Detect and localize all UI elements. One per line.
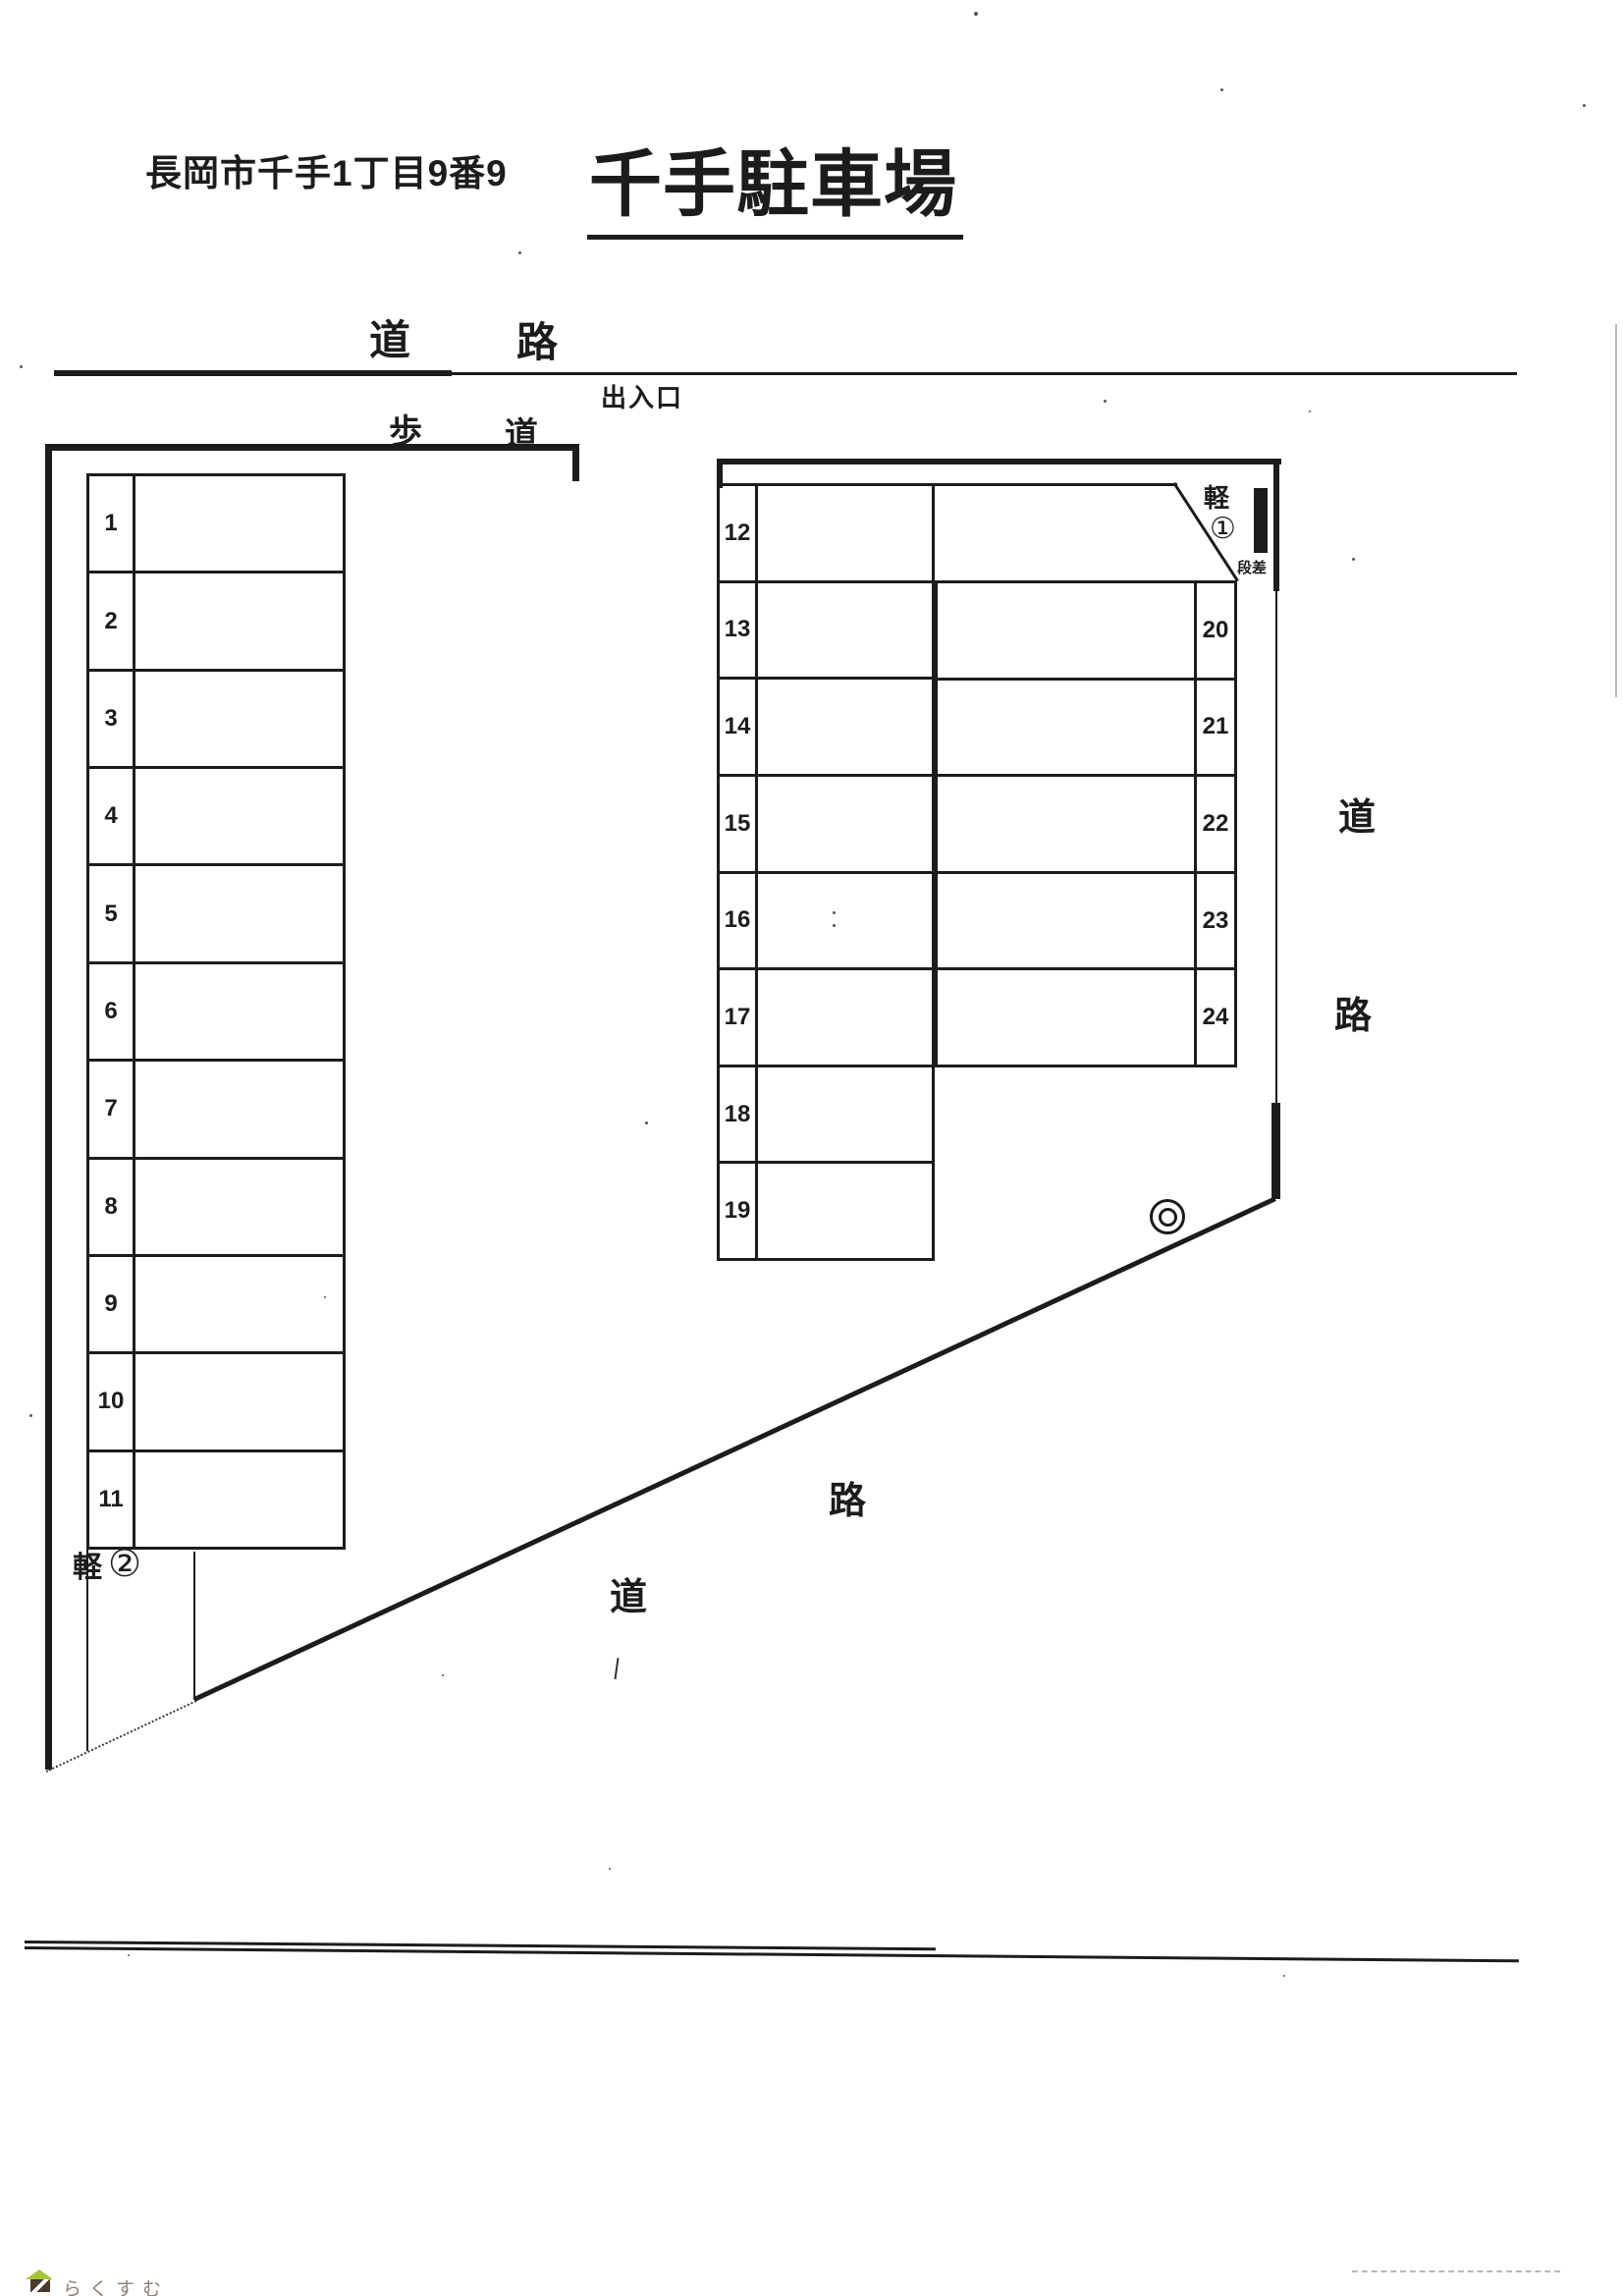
label-entrance: 出入口 [601,385,683,410]
scan-speckle [324,1296,326,1298]
space-number: 21 [1194,681,1234,775]
parking-space-row: 7 [89,1062,343,1159]
boundary-right-lower [1271,1103,1280,1199]
parking-space-row: 21 [938,681,1234,778]
scan-speckle [1583,104,1586,107]
scan-speckle [29,1414,32,1417]
parking-space-row: 14 [720,680,932,777]
space-number: 19 [720,1164,758,1258]
page-title: 千手駐車場 [587,126,963,240]
label-light-car-1-kei: 軽 [1204,485,1229,511]
space-number: 3 [89,672,135,766]
space-number: 20 [1194,583,1234,678]
parking-space-row: 4 [89,769,343,866]
label-road-bottom-1: 道 [610,1579,647,1616]
tick-mark [614,1658,619,1679]
space-number: 8 [89,1160,135,1254]
watermark-text: らくすむ [63,2274,169,2296]
right-block-top-line [935,483,1177,486]
space-cell [135,574,343,668]
space-number: 24 [1194,970,1234,1065]
space-cell [135,1452,343,1547]
scan-edge-line [1615,324,1617,697]
scan-speckle [833,911,836,914]
space-number: 10 [89,1354,135,1449]
parking-map-page: 長岡市千手1丁目9番9 千手駐車場 道 路 歩 道 出入口 1234567891… [0,0,1623,2296]
left-parking-table: 1234567891011 [86,473,346,1550]
parking-space-row: 22 [938,777,1234,874]
scan-speckle [442,1674,444,1676]
boundary-diagonal [193,1196,1276,1701]
label-road-right-1: 道 [1338,799,1376,837]
boundary-top-left-hook [572,444,579,481]
light-car-2-divider [193,1552,195,1700]
parking-space-row: 1 [89,476,343,574]
scan-speckle [1283,1975,1285,1977]
space-cell [135,1160,343,1254]
space-cell [758,970,932,1065]
parking-space-row: 11 [89,1452,343,1547]
parking-space-row: 10 [89,1354,343,1451]
space-number: 12 [720,486,758,580]
parking-space-row: 17 [720,970,932,1067]
label-step: 段差 [1237,561,1267,575]
space-number: 2 [89,574,135,668]
watermark-house-roof-icon [26,2269,53,2279]
label-road-top-2: 路 [516,322,558,363]
space-number: 4 [89,769,135,863]
watermark [26,2269,55,2295]
space-cell [938,583,1194,678]
parking-space-row: 23 [938,874,1234,971]
right-parking-table: 2021222324 [935,580,1237,1067]
parking-space-row: 13 [720,583,932,681]
light-car-2-left-edge [86,1550,88,1751]
space-number: 9 [89,1257,135,1351]
parking-space-row: 12 [720,486,932,583]
scan-speckle [1309,410,1311,412]
parking-space-row: 8 [89,1160,343,1257]
scan-speckle [833,924,836,927]
road-line-top-thick [54,370,452,376]
space-cell [135,866,343,960]
space-number: 23 [1194,874,1234,968]
label-light-car-2-num: ② [108,1546,141,1583]
manhole-marker-inner [1159,1208,1177,1227]
space-number: 6 [89,964,135,1059]
boundary-right-upper [1273,459,1279,591]
space-cell [135,1062,343,1156]
parking-space-row: 15 [720,777,932,874]
scan-speckle [20,365,23,368]
space-number: 5 [89,866,135,960]
road-line-top-thin [450,372,1517,375]
space-number: 11 [89,1452,135,1547]
space-number: 17 [720,970,758,1065]
space-cell [135,1354,343,1449]
scan-speckle [1220,88,1223,91]
parking-space-row: 20 [938,583,1234,681]
space-number: 7 [89,1062,135,1156]
space-cell [758,874,932,968]
space-number: 15 [720,777,758,871]
parking-space-row: 2 [89,574,343,671]
manhole-marker [1150,1199,1185,1234]
space-number: 13 [720,583,758,678]
space-cell [938,681,1194,775]
site-address: 長岡市千手1丁目9番9 [145,143,508,196]
space-cell [758,1067,932,1162]
boundary-top-left [45,444,579,451]
space-cell [135,769,343,863]
label-light-car-1-num: ① [1210,515,1236,544]
scan-speckle [1352,558,1355,561]
parking-space-row: 24 [938,970,1234,1065]
label-road-top-1: 道 [369,320,410,361]
boundary-left [45,444,52,1770]
space-cell [135,476,343,571]
scan-speckle [645,1121,648,1124]
space-cell [758,680,932,774]
space-cell [938,970,1194,1065]
parking-space-row: 3 [89,672,343,769]
parking-space-row: 9 [89,1257,343,1354]
space-number: 16 [720,874,758,968]
space-cell [135,672,343,766]
boundary-right-mid [1275,591,1277,1103]
parking-space-row: 18 [720,1067,932,1165]
scan-dashes [1352,2270,1560,2272]
label-road-bottom-2: 路 [829,1483,866,1520]
space-number: 18 [720,1067,758,1162]
space-cell [135,964,343,1059]
middle-parking-table: 1213141516171819 [717,483,935,1261]
scan-speckle [974,12,978,16]
space-cell [758,777,932,871]
space-number: 14 [720,680,758,774]
space-number: 1 [89,476,135,571]
boundary-dotted [46,1700,197,1773]
space-cell [135,1257,343,1351]
boundary-top-right [717,459,1281,465]
space-cell [758,583,932,678]
wall-bar [1254,488,1268,553]
space-cell [938,874,1194,968]
scan-speckle [1104,400,1107,403]
parking-space-row: 16 [720,874,932,971]
parking-space-row: 6 [89,964,343,1062]
space-number: 22 [1194,777,1234,871]
parking-space-row: 5 [89,866,343,963]
space-cell [758,486,932,580]
label-road-right-2: 路 [1334,998,1372,1035]
scan-speckle [609,1868,611,1870]
parking-space-row: 19 [720,1164,932,1258]
space-cell [938,777,1194,871]
watermark-house-body-icon [30,2279,50,2292]
space-cell [758,1164,932,1258]
scan-speckle [128,1954,130,1956]
scan-speckle [518,251,521,254]
